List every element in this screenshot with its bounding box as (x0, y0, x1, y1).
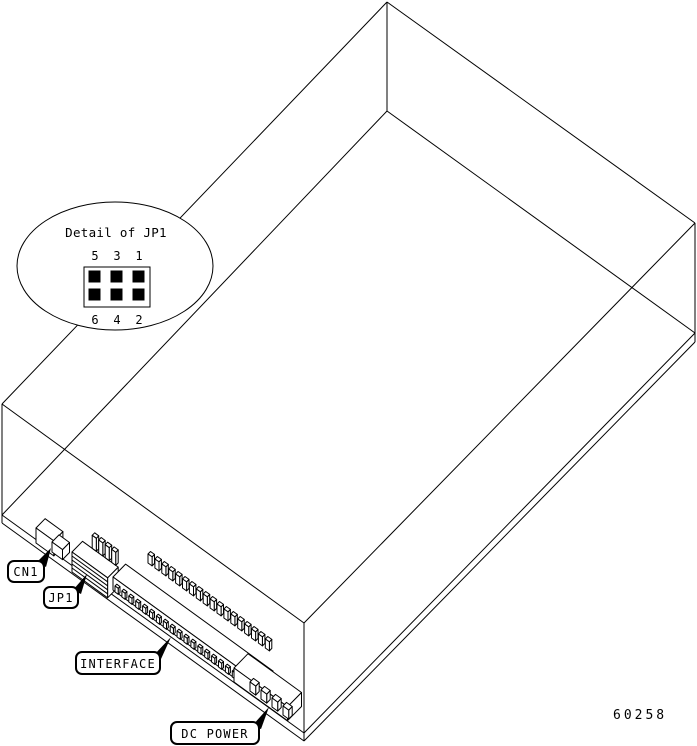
edge-front-band-right (304, 342, 695, 741)
edge-bottom-right-hidden (387, 111, 695, 333)
cn1-connector (36, 519, 70, 560)
jp1-pin-front (105, 545, 109, 561)
jp1-pin-front (99, 540, 103, 556)
pin-number-5: 5 (91, 249, 98, 263)
pin-number-1: 1 (135, 249, 142, 263)
edge-front-top-right (304, 223, 695, 623)
jp1-pin-square-2 (133, 289, 145, 301)
jp1-pin-square-6 (89, 289, 101, 301)
dc-power-label: DC POWER (181, 727, 248, 741)
jp1-pin-square-3 (111, 271, 123, 283)
interface-label: INTERFACE (80, 657, 156, 671)
diagram-page: Detail of JP1 5 3 1 6 4 2 CN1 JP1 INTERF… (0, 0, 697, 746)
jp1-detail-callout: Detail of JP1 5 3 1 6 4 2 (17, 202, 213, 330)
jp1-pin-square-4 (111, 289, 123, 301)
jp1-pin-square-1 (133, 271, 145, 283)
interface-label-group: INTERFACE (76, 637, 171, 674)
dc-power-connector (234, 654, 302, 721)
jp1-label: JP1 (48, 591, 73, 605)
edge-top-left (2, 2, 387, 404)
detail-ellipse (17, 202, 213, 330)
jp1-pin-front (92, 535, 96, 551)
pin-number-4: 4 (113, 313, 120, 327)
drive-diagram-canvas: Detail of JP1 5 3 1 6 4 2 CN1 JP1 INTERF… (0, 0, 697, 746)
edge-top-right (387, 2, 695, 223)
jp1-pin-square-5 (89, 271, 101, 283)
figure-number: 60258 (613, 708, 667, 723)
drive-wireframe (2, 2, 695, 741)
dc-power-label-group: DC POWER (171, 707, 269, 744)
pin-number-2: 2 (135, 313, 142, 327)
jp1-pin-front (112, 549, 116, 565)
detail-title: Detail of JP1 (65, 225, 167, 240)
pin-number-6: 6 (91, 313, 98, 327)
pin-number-3: 3 (113, 249, 120, 263)
cn1-label: CN1 (13, 565, 38, 579)
edge-front-bottom-right (304, 333, 695, 733)
